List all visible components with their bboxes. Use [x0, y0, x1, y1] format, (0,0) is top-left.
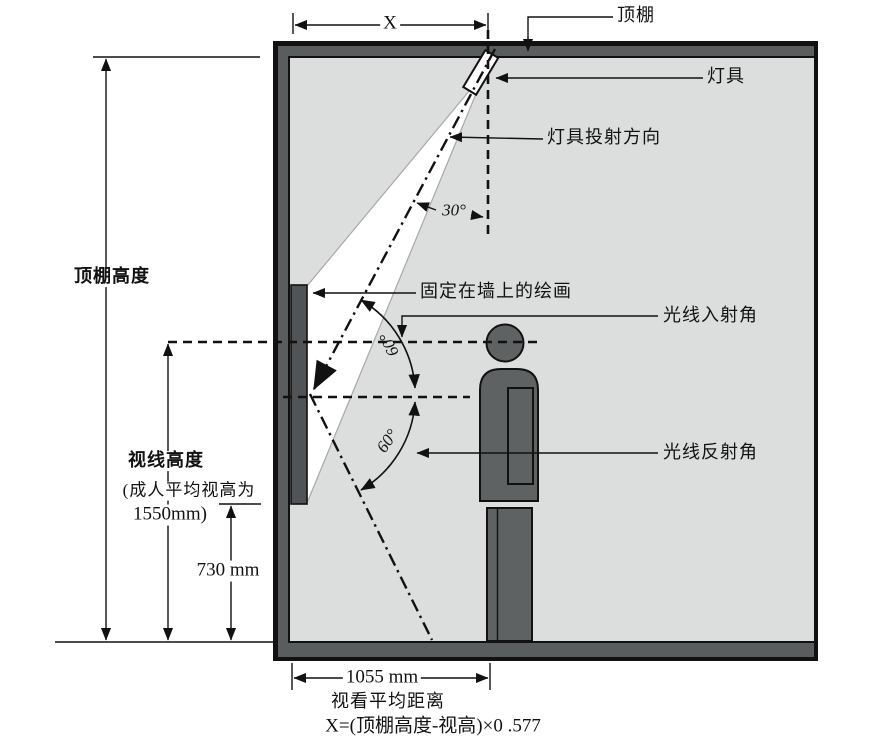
- lamp-label: 灯具: [707, 67, 745, 87]
- d1055-label: 1055 mm: [343, 668, 421, 689]
- lighting-diagram: X 顶棚 灯具 灯具投射方向 30° 固定在墙上的绘画 光线入射角 光线反射角 …: [0, 0, 874, 742]
- diagram-drawing: [0, 0, 874, 742]
- h730-label: 730 mm: [194, 561, 263, 582]
- viewing-distance-label: 视看平均距离: [331, 692, 445, 712]
- ceiling-height-label: 顶棚高度: [71, 267, 153, 287]
- sight-height-note-2: 1550mm): [130, 505, 210, 526]
- x-dim-label: X: [380, 14, 400, 35]
- person-arm: [508, 388, 533, 484]
- reflection-label: 光线反射角: [663, 443, 758, 463]
- wall-painting: [291, 285, 307, 504]
- sight-height-note-1: (成人平均视高为: [120, 482, 259, 501]
- sight-height-label: 视线高度: [125, 451, 207, 471]
- person-legs: [487, 508, 532, 641]
- incidence-label: 光线入射角: [663, 306, 758, 326]
- angle30-label: 30°: [442, 202, 466, 221]
- lamp-direction-label: 灯具投射方向: [547, 128, 661, 148]
- ceiling-label: 顶棚: [617, 6, 655, 26]
- painting-label: 固定在墙上的绘画: [420, 282, 572, 302]
- person-figure: [480, 325, 538, 642]
- formula-label: X=(顶棚高度-视高)×0 .577: [325, 717, 541, 738]
